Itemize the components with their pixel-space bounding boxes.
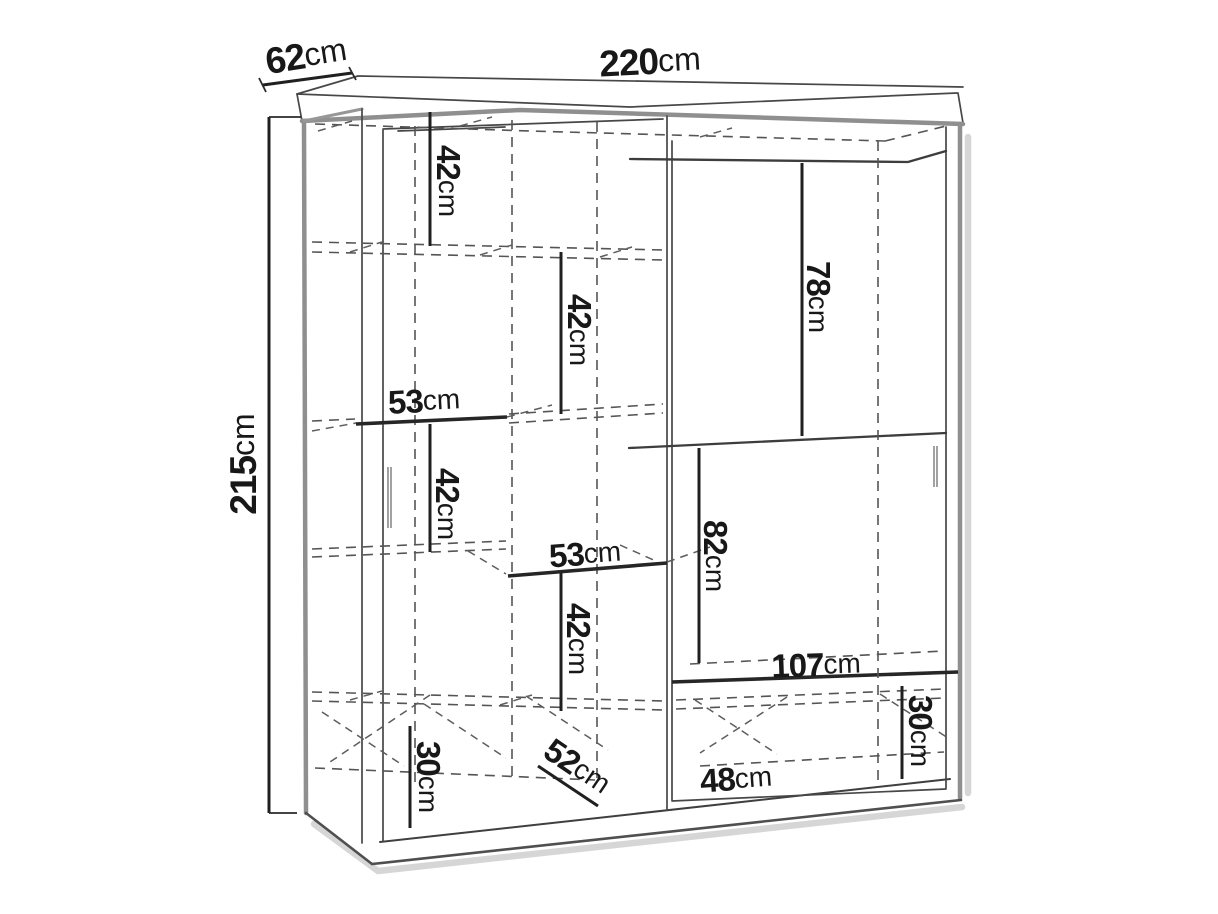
dim-unit: cm: [565, 329, 596, 366]
dim-label-107: 107cm: [771, 644, 862, 684]
dim-label-door-78: 78cm: [801, 261, 838, 333]
left-outer-edge: [304, 121, 306, 813]
dim-value: 30: [411, 741, 448, 776]
dim-unit: cm: [906, 730, 937, 767]
dim-unit: cm: [734, 760, 773, 794]
dim-value: 82: [698, 520, 735, 555]
dim-unit: cm: [225, 413, 261, 456]
dim-label-base-30-left: 30cm: [411, 741, 448, 813]
dim-unit: cm: [583, 535, 622, 569]
dim-label-height: 215cm: [223, 413, 264, 514]
dim-value: 42: [561, 603, 598, 638]
dim-unit: cm: [414, 776, 445, 813]
dim-value: 42: [430, 468, 467, 503]
diagram-canvas: 220cm 62cm 215cm 42cm 42cm 53cm 42cm 53c…: [0, 0, 1218, 914]
dim-value: 30: [903, 695, 940, 730]
dim-unit: cm: [804, 296, 835, 333]
dim-value: 48: [699, 760, 737, 799]
dim-unit: cm: [434, 180, 465, 217]
wardrobe-dimension-diagram: 220cm 62cm 215cm 42cm 42cm 53cm 42cm 53c…: [0, 0, 1218, 914]
dim-unit: cm: [433, 503, 464, 540]
dim-label-top-shelf-42: 42cm: [431, 145, 468, 217]
dim-unit: cm: [422, 383, 461, 416]
dim-label-base-30-right: 30cm: [903, 695, 940, 767]
dim-value: 53: [548, 535, 586, 574]
dim-label-second-shelf-42: 42cm: [562, 294, 599, 366]
dim-unit: cm: [657, 40, 701, 78]
dim-unit: cm: [823, 647, 861, 679]
dim-value: 42: [562, 294, 599, 329]
dim-value: 42: [431, 145, 468, 180]
dim-value: 107: [771, 645, 824, 684]
dim-unit: cm: [564, 638, 595, 675]
dim-value: 62: [262, 35, 308, 82]
dim-value: 53: [387, 382, 424, 421]
dim-value: 220: [598, 40, 659, 84]
dim-label-third-shelf-42: 42cm: [430, 468, 467, 540]
dim-unit: cm: [701, 555, 732, 592]
dim-label-door-82: 82cm: [698, 520, 735, 592]
dim-value: 215: [223, 456, 264, 515]
dim-unit: cm: [301, 31, 349, 73]
dim-label-fourth-shelf-42: 42cm: [561, 603, 598, 675]
dim-value: 78: [801, 261, 838, 296]
